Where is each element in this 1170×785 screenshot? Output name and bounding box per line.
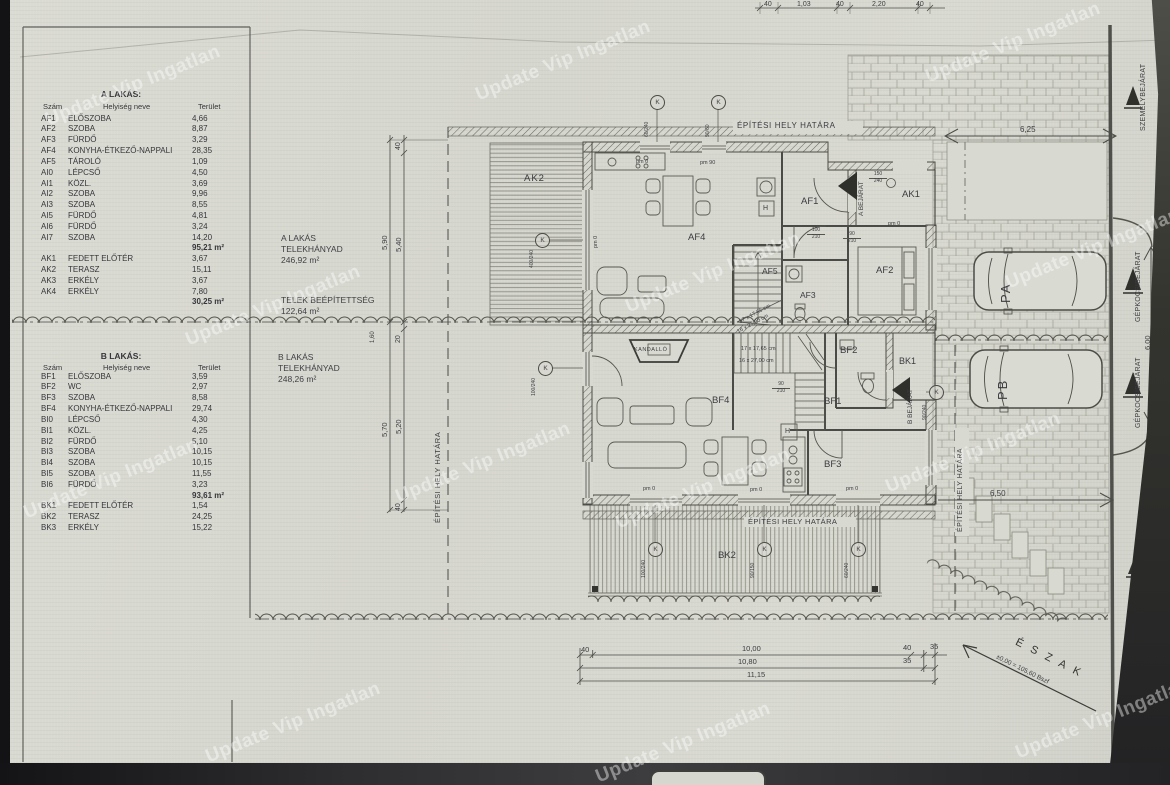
- table-row: AK2TERASZ15,11: [41, 265, 251, 276]
- table-a-title: A LAKÁS:: [41, 89, 201, 99]
- room-label-bk1: BK1: [899, 357, 916, 366]
- room-label-ak1: AK1: [902, 190, 920, 200]
- room-label-af4: AF4: [688, 233, 705, 243]
- szemelybejarat-label-top: SZEMÉLYBEJÁRAT: [1140, 64, 1147, 131]
- window-mark-size: 100/240: [532, 378, 537, 396]
- col-name: Helyiség neve: [103, 363, 150, 372]
- window-mark-icon: K: [851, 542, 866, 557]
- dim-left: 20: [395, 335, 402, 343]
- pm0-label: pm 0: [594, 236, 600, 248]
- table-row: BI3SZOBA10,15: [41, 447, 251, 458]
- dim-left: 40: [395, 503, 402, 511]
- dim-top: 1,03: [797, 1, 811, 8]
- table-b-k-rows: BK1FEDETT ELŐTÉR1,54 BK2TERASZ24,25 BK3E…: [41, 501, 251, 534]
- dim-left-small: 1,60: [370, 331, 376, 343]
- boundary-label-left: ÉPÍTÉSI HELY HATÁRA: [434, 432, 442, 523]
- boundary-label-bottom: ÉPÍTÉSI HELY HATÁRA: [748, 518, 837, 526]
- table-a-rows: AF1ELŐSZOBA4,66 AF2SZOBA8,87 AF3FÜRDŐ3,2…: [41, 114, 251, 244]
- room-label-af2: AF2: [876, 266, 893, 276]
- table-row: AI1KÖZL.3,69: [41, 179, 251, 190]
- table-row: AK4ERKÉLY7,80: [41, 287, 251, 298]
- door-size-label: 90 210: [843, 232, 861, 245]
- table-a-subtotal: 95,21 m²: [192, 243, 224, 252]
- room-label-ak2: AK2: [524, 174, 545, 184]
- window-mark-size: 100/240: [642, 560, 647, 578]
- dim-left: 5,40: [395, 237, 403, 252]
- col-area: Terület: [198, 363, 221, 372]
- dim-left: 5,90: [381, 235, 389, 250]
- table-row: AF4KONYHA-ÉTKEZŐ-NAPPALI28,35: [41, 146, 251, 157]
- table-row: AK1FEDETT ELŐTÉR3,67: [41, 254, 251, 265]
- window-mark-icon: K: [650, 95, 665, 110]
- coverage-label: TELEK BEÉPÍTETTSÉG: [281, 295, 375, 306]
- table-row: BF4KONYHA-ÉTKEZŐ-NAPPALI29,74: [41, 404, 251, 415]
- table-row: AI6FÜRDŐ3,24: [41, 222, 251, 233]
- table-row: BI6FÜRDŐ3,23: [41, 480, 251, 491]
- b-share-line1: B LAKÁS: [278, 352, 340, 363]
- table-a-k-rows: AK1FEDETT ELŐTÉR3,67 AK2TERASZ15,11 AK3E…: [41, 254, 251, 297]
- dim-bottom: 40: [581, 646, 589, 654]
- table-row: AK3ERKÉLY3,67: [41, 276, 251, 287]
- room-label-af5: AF5: [762, 267, 778, 276]
- table-row: BI5SZOBA11,55: [41, 469, 251, 480]
- dim-top: 2,20: [872, 1, 886, 8]
- table-row: AI2SZOBA9,96: [41, 189, 251, 200]
- table-row: BF2WC2,97: [41, 382, 251, 393]
- table-row: BK3ERKÉLY15,22: [41, 523, 251, 534]
- photo-edge-bottom: [0, 763, 1170, 785]
- dim-left: 5,20: [395, 419, 403, 434]
- table-row: BK2TERASZ24,25: [41, 512, 251, 523]
- table-b-title: B LAKÁS:: [41, 351, 201, 361]
- coverage-annotation: TELEK BEÉPÍTETTSÉG 122,64 m²: [281, 295, 375, 317]
- gepkocsibejarat-label-1: GÉPKOCSIBEJÁRAT: [1135, 251, 1142, 322]
- dim-bottom: 40: [903, 644, 911, 652]
- window-mark-size: 60/240: [645, 122, 650, 137]
- gepkocsibejarat-label-2: GÉPKOCSIBEJÁRAT: [1135, 357, 1142, 428]
- table-row: BF3SZOBA8,58: [41, 393, 251, 404]
- table-a-k-subtotal: 30,25 m²: [192, 297, 224, 306]
- parking-label-pb: PB: [996, 379, 1009, 400]
- table-row: BK1FEDETT ELŐTÉR1,54: [41, 501, 251, 512]
- room-label-bf2: BF2: [840, 346, 857, 356]
- dim-driveway-625: 6,25: [1020, 126, 1036, 134]
- door-size-label: 90 210: [772, 382, 790, 395]
- door-size-label: 150 240: [869, 172, 887, 185]
- window-mark-icon: K: [538, 361, 553, 376]
- table-row: BI0LÉPCSŐ4,30: [41, 415, 251, 426]
- table-row: AF5TÁROLÓ1,09: [41, 157, 251, 168]
- window-mark-icon: K: [648, 542, 663, 557]
- dim-bottom: 10,80: [738, 658, 757, 666]
- fireplace-label: KANDALLÓ: [634, 348, 667, 354]
- table-row: AI5FÜRDŐ4,81: [41, 211, 251, 222]
- entrance-a-label: A BEJÁRAT: [859, 181, 866, 216]
- door-size-label: 100 210: [807, 228, 825, 241]
- a-share-annotation: A LAKÁS TELEKHÁNYAD 246,92 m²: [281, 233, 343, 266]
- b-share-line2: TELEKHÁNYAD: [278, 363, 340, 374]
- dim-bottom: 10,00: [742, 645, 761, 653]
- table-row: AI0LÉPCSŐ4,50: [41, 168, 251, 179]
- pm0-label: pm 0: [846, 487, 858, 493]
- table-row: BI2FÜRDŐ5,10: [41, 437, 251, 448]
- window-mark-icon: K: [929, 385, 944, 400]
- stair-note-b1: 17 x 17,65 cm: [741, 347, 776, 353]
- dim-bottom: 35: [930, 643, 938, 651]
- a-share-line2: TELEKHÁNYAD: [281, 244, 343, 255]
- window-mark-size: 60/240: [845, 563, 850, 578]
- parking-label-pa: PA: [999, 283, 1012, 303]
- table-row: AF3FÜRDŐ3,29: [41, 135, 251, 146]
- window-mark-icon: K: [711, 95, 726, 110]
- dim-top: 40: [764, 1, 772, 8]
- col-area: Terület: [198, 102, 221, 111]
- dim-bottom: 11,15: [747, 671, 765, 679]
- window-mark-size: 90/150: [751, 563, 756, 578]
- room-label-af1: AF1: [801, 197, 818, 207]
- table-row: BF1ELŐSZOBA3,59: [41, 372, 251, 383]
- entrance-b-label: B BEJÁRAT: [908, 389, 915, 424]
- room-label-bf3: BF3: [824, 460, 841, 470]
- pm0-label: pm 0: [888, 222, 900, 228]
- next-sheet-peek: [650, 770, 766, 785]
- h-symbol-b: H: [785, 428, 790, 435]
- table-row: AI7SZOBA14,20: [41, 233, 251, 244]
- dim-driveway-650: 6,50: [990, 490, 1006, 498]
- table-row: AF1ELŐSZOBA4,66: [41, 114, 251, 125]
- dim-bottom: 35: [903, 657, 911, 665]
- window-mark-icon: K: [535, 233, 550, 248]
- table-row: AI3SZOBA8,55: [41, 200, 251, 211]
- table-row: BI1KÖZL.4,25: [41, 426, 251, 437]
- pm0-label: pm 0: [643, 487, 655, 493]
- floor-plan-photo: A LAKÁS: Szám Helyiség neve Terület AF1E…: [0, 0, 1170, 785]
- pm90-label: pm 90: [700, 161, 715, 167]
- a-share-value: 246,92 m²: [281, 255, 343, 266]
- room-label-bf1: BF1: [824, 397, 841, 407]
- room-label-af3: AF3: [800, 291, 816, 300]
- stair-note-b2: 16 x 27,00 cm: [739, 359, 774, 365]
- dim-left: 5,70: [381, 422, 389, 437]
- room-label-bf4: BF4: [712, 396, 729, 406]
- boundary-label-right: ÉPÍTÉSI HELY HATÁRA: [957, 448, 964, 532]
- h-symbol-a: H: [763, 205, 768, 212]
- dim-left: 40: [395, 142, 402, 150]
- col-num: Szám: [43, 363, 62, 372]
- pm0-label: pm 0: [636, 160, 648, 166]
- coverage-value: 122,64 m²: [281, 306, 375, 317]
- table-row: AF2SZOBA8,87: [41, 124, 251, 135]
- window-mark-icon: K: [757, 542, 772, 557]
- photo-edge-left: [0, 0, 10, 785]
- dim-top: 40: [916, 1, 924, 8]
- room-label-bk2: BK2: [718, 551, 736, 561]
- window-mark-size: 400/240: [530, 250, 535, 268]
- boundary-label-top: ÉPÍTÉSI HELY HATÁRA: [737, 122, 836, 130]
- b-share-annotation: B LAKÁS TELEKHÁNYAD 248,26 m²: [278, 352, 340, 385]
- col-name: Helyiség neve: [103, 102, 150, 111]
- pm0-label: pm 0: [750, 488, 762, 494]
- window-mark-size: 90/60: [706, 124, 711, 137]
- table-b-rows: BF1ELŐSZOBA3,59 BF2WC2,97 BF3SZOBA8,58 B…: [41, 372, 251, 491]
- dim-top: 40: [836, 1, 844, 8]
- table-row: BI4SZOBA10,15: [41, 458, 251, 469]
- table-b-subtotal: 93,61 m²: [192, 491, 224, 500]
- b-share-value: 248,26 m²: [278, 374, 340, 385]
- col-num: Szám: [43, 102, 62, 111]
- a-share-line1: A LAKÁS: [281, 233, 343, 244]
- table-a-header: Szám Helyiség neve Terület: [41, 102, 251, 112]
- window-mark-size: 90/240: [923, 405, 928, 420]
